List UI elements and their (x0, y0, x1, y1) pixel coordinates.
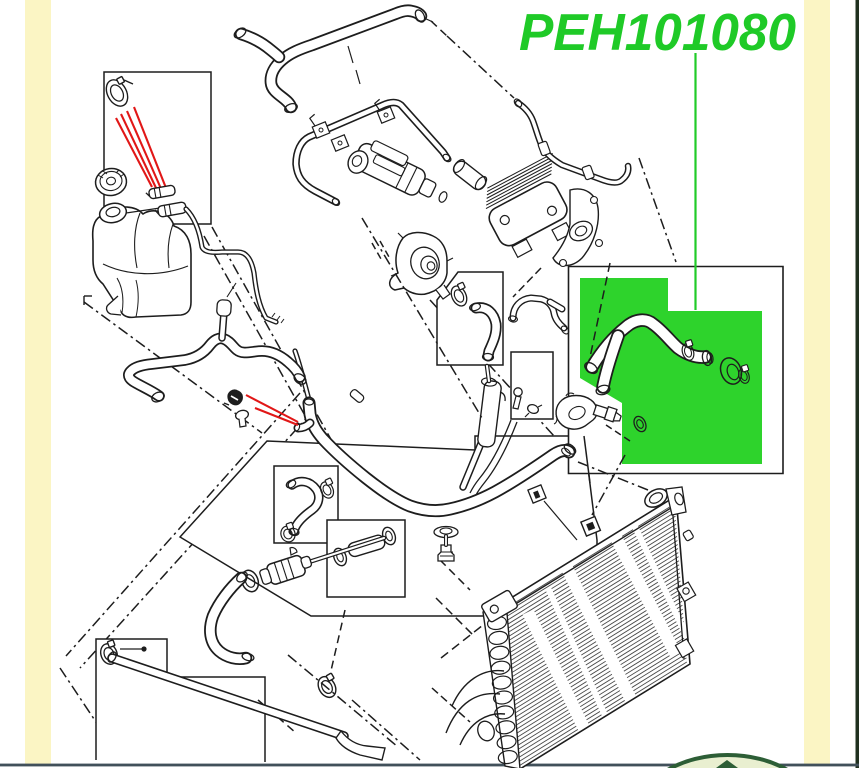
svg-text:PEH101080: PEH101080 (519, 3, 796, 61)
